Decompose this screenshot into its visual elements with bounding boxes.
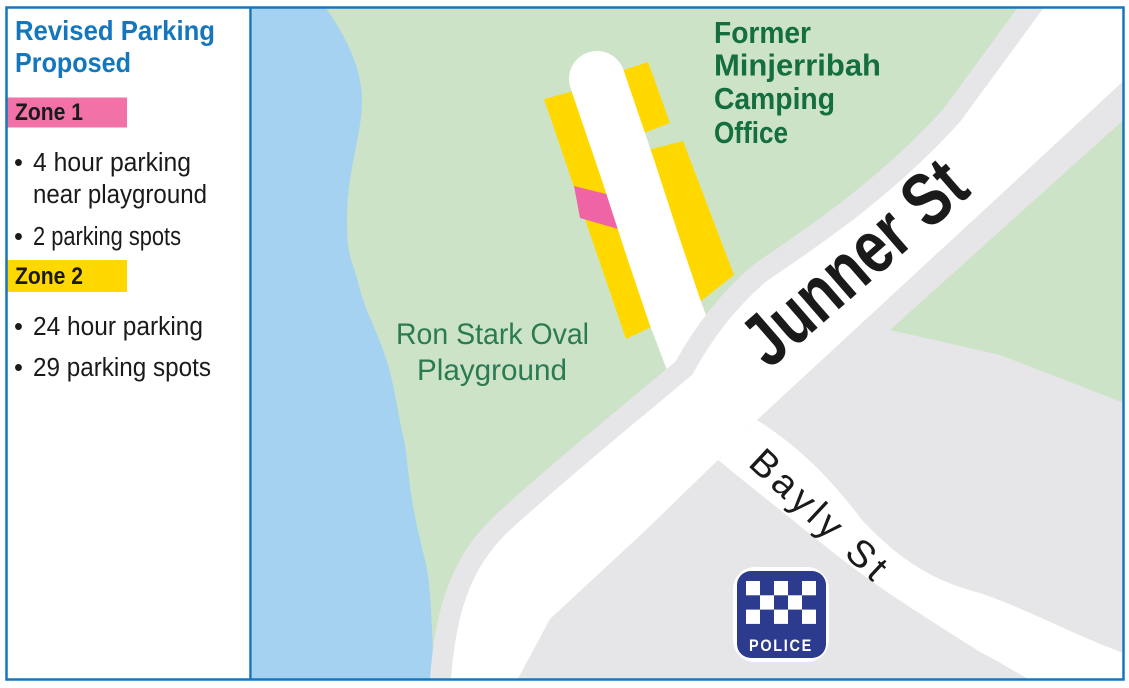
svg-text:•: •	[14, 223, 23, 251]
svg-text:•: •	[14, 354, 23, 382]
svg-text:4 hour parking: 4 hour parking	[33, 149, 191, 177]
svg-text:POLICE: POLICE	[749, 636, 813, 655]
svg-text:2 parking spots: 2 parking spots	[33, 223, 181, 251]
svg-text:Ron Stark Oval: Ron Stark Oval	[396, 318, 589, 351]
svg-text:Camping: Camping	[714, 81, 835, 116]
svg-text:Zone 1: Zone 1	[15, 99, 83, 126]
svg-text:Minjerribah: Minjerribah	[714, 48, 881, 83]
svg-text:•: •	[14, 313, 23, 341]
svg-text:Office: Office	[714, 115, 788, 150]
svg-text:Former: Former	[714, 15, 811, 50]
svg-text:Proposed: Proposed	[15, 47, 131, 78]
svg-text:Revised Parking: Revised Parking	[15, 15, 215, 46]
svg-text:Zone 2: Zone 2	[15, 263, 83, 290]
svg-text:Playground: Playground	[417, 354, 567, 387]
svg-text:•: •	[14, 149, 23, 177]
svg-text:near playground: near playground	[33, 181, 207, 209]
svg-text:24 hour parking: 24 hour parking	[33, 313, 203, 341]
svg-text:29 parking spots: 29 parking spots	[33, 354, 211, 382]
